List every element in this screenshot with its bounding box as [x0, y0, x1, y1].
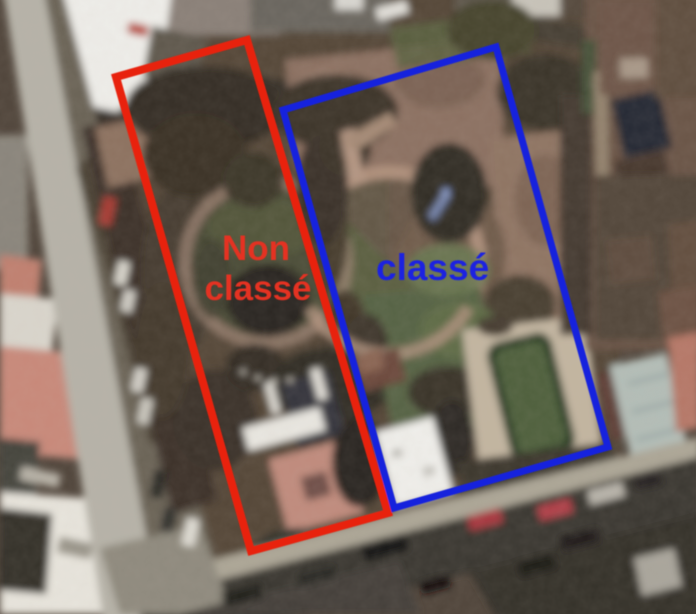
svg-text:Non: Non — [222, 229, 290, 268]
svg-text:classé: classé — [204, 269, 311, 308]
svg-text:classé: classé — [376, 247, 489, 288]
